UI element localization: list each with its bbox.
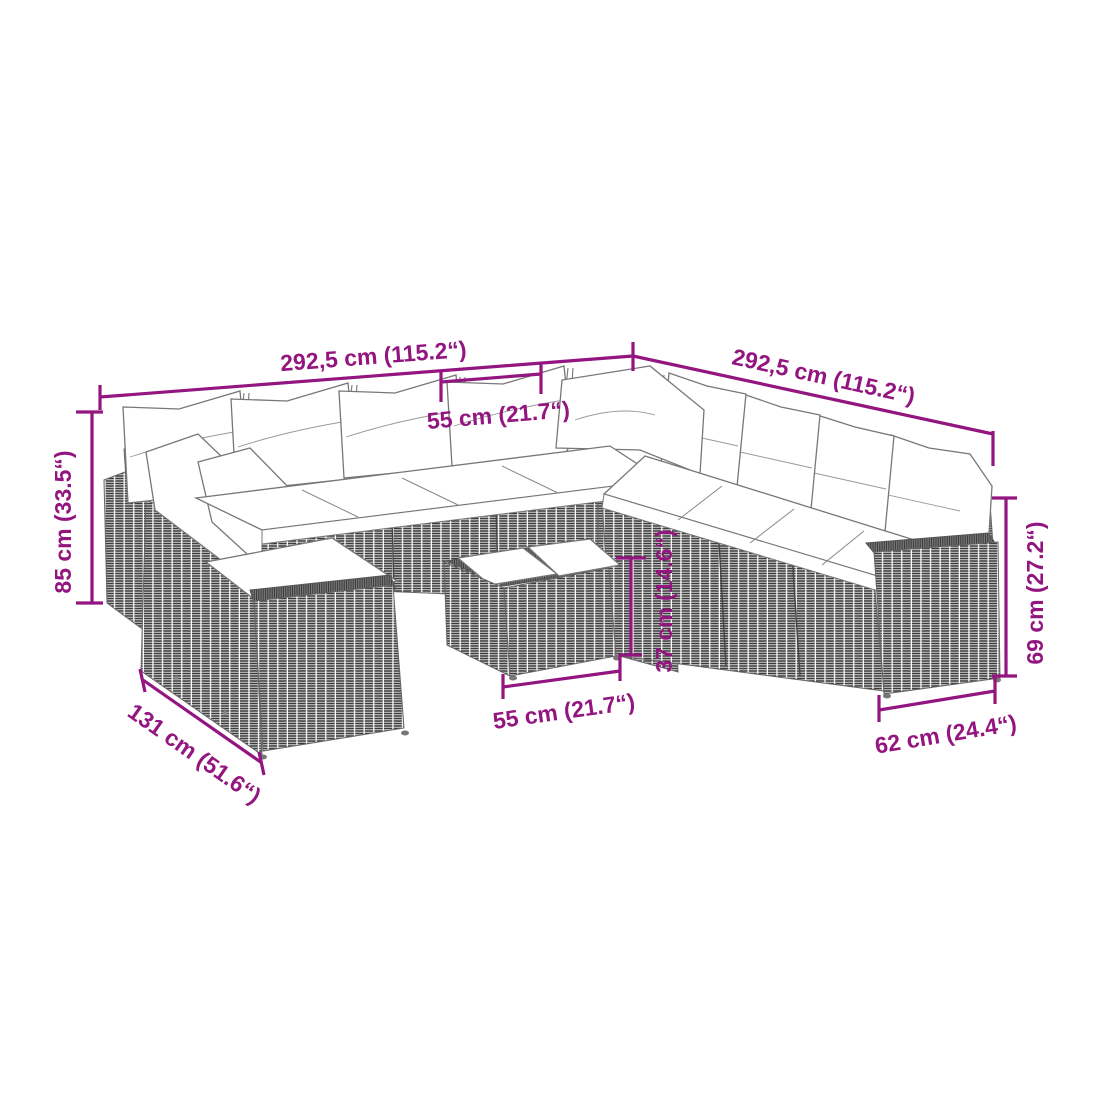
svg-text:85 cm (33.5“): 85 cm (33.5“) bbox=[50, 450, 76, 593]
svg-text:69 cm (27.2“): 69 cm (27.2“) bbox=[1022, 521, 1048, 664]
svg-text:37 cm (14.6“): 37 cm (14.6“) bbox=[651, 529, 677, 672]
